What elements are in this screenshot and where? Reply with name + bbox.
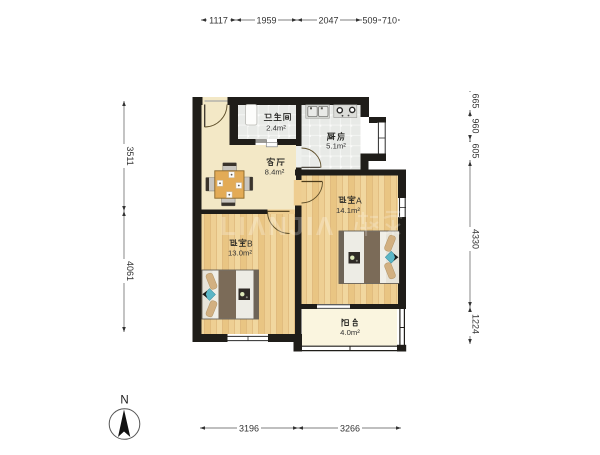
svg-text:665: 665 xyxy=(471,93,481,108)
svg-text:1117: 1117 xyxy=(209,16,228,26)
svg-text:1224: 1224 xyxy=(471,314,481,334)
svg-text:LIΛNJIΛ: LIΛNJIΛ xyxy=(220,211,336,241)
svg-text:5.1m²: 5.1m² xyxy=(326,142,346,151)
svg-text:4330: 4330 xyxy=(471,229,481,249)
svg-text:A: A xyxy=(356,195,362,205)
svg-text:8.4m²: 8.4m² xyxy=(265,168,285,177)
svg-text:1959: 1959 xyxy=(256,16,276,26)
svg-text:509: 509 xyxy=(362,16,377,26)
svg-text:3511: 3511 xyxy=(125,146,135,165)
svg-text:2.4m²: 2.4m² xyxy=(266,124,286,133)
svg-text:4061: 4061 xyxy=(125,261,135,281)
svg-text:710: 710 xyxy=(382,16,397,26)
svg-text:13.0m²: 13.0m² xyxy=(228,249,252,258)
svg-text:14.1m²: 14.1m² xyxy=(336,206,360,215)
svg-text:2047: 2047 xyxy=(318,16,338,26)
svg-text:960: 960 xyxy=(471,118,481,133)
svg-text:3196: 3196 xyxy=(239,424,259,434)
svg-text:N: N xyxy=(120,395,128,407)
svg-text:B: B xyxy=(247,238,253,248)
svg-text:605: 605 xyxy=(471,143,481,158)
svg-text:4.0m²: 4.0m² xyxy=(340,328,360,337)
svg-text:3266: 3266 xyxy=(340,424,360,434)
